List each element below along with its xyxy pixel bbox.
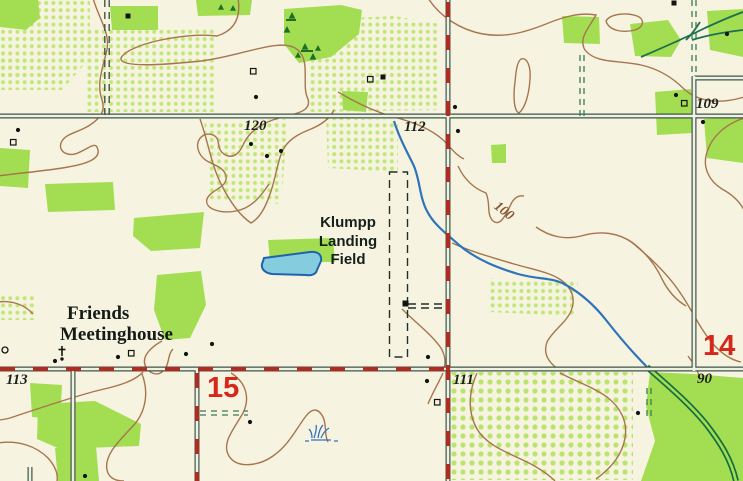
spot-elevation-120: 120 — [244, 118, 267, 135]
building-icon — [403, 301, 409, 307]
building-icon — [636, 411, 640, 415]
building-icon — [674, 93, 678, 97]
building-icon — [265, 154, 269, 158]
topo-map: Klumpp Landing Field Friends Meetinghous… — [0, 0, 743, 481]
building-icon — [53, 359, 57, 363]
building-icon — [16, 128, 20, 132]
building-icon — [456, 129, 460, 133]
label-meetinghouse-line1: Friends — [67, 303, 173, 324]
spot-elevation-112: 112 — [404, 119, 426, 136]
building-icon — [126, 14, 131, 19]
building-icon — [184, 352, 188, 356]
building-icon — [672, 1, 677, 6]
building-icon — [426, 355, 430, 359]
label-landing-field: Klumpp Landing Field — [306, 214, 390, 270]
building-icon — [701, 120, 705, 124]
building-icon — [249, 142, 253, 146]
building-icon — [453, 105, 457, 109]
building-icon — [425, 379, 429, 383]
building-icon — [254, 95, 258, 99]
building-icon — [248, 420, 252, 424]
section-number-14: 14 — [703, 333, 735, 359]
label-landing-field-line2: Landing — [306, 233, 390, 252]
building-icon — [381, 75, 386, 80]
spot-elevation-111: 111 — [453, 372, 474, 389]
building-icon — [210, 342, 214, 346]
label-landing-field-line1: Klumpp — [306, 214, 390, 233]
building-icon — [116, 355, 120, 359]
spot-elevation-109: 109 — [696, 96, 719, 113]
label-meetinghouse-line2: Meetinghouse — [60, 324, 173, 345]
building-icon — [725, 32, 729, 36]
label-landing-field-line3: Field — [306, 251, 390, 270]
spot-elevation-113: 113 — [6, 372, 28, 389]
building-icon — [279, 149, 283, 153]
building-icon — [83, 474, 87, 478]
label-meetinghouse: Friends Meetinghouse — [60, 303, 173, 345]
spot-elevation-90: 90 — [697, 371, 712, 388]
section-number-15: 15 — [207, 375, 239, 401]
